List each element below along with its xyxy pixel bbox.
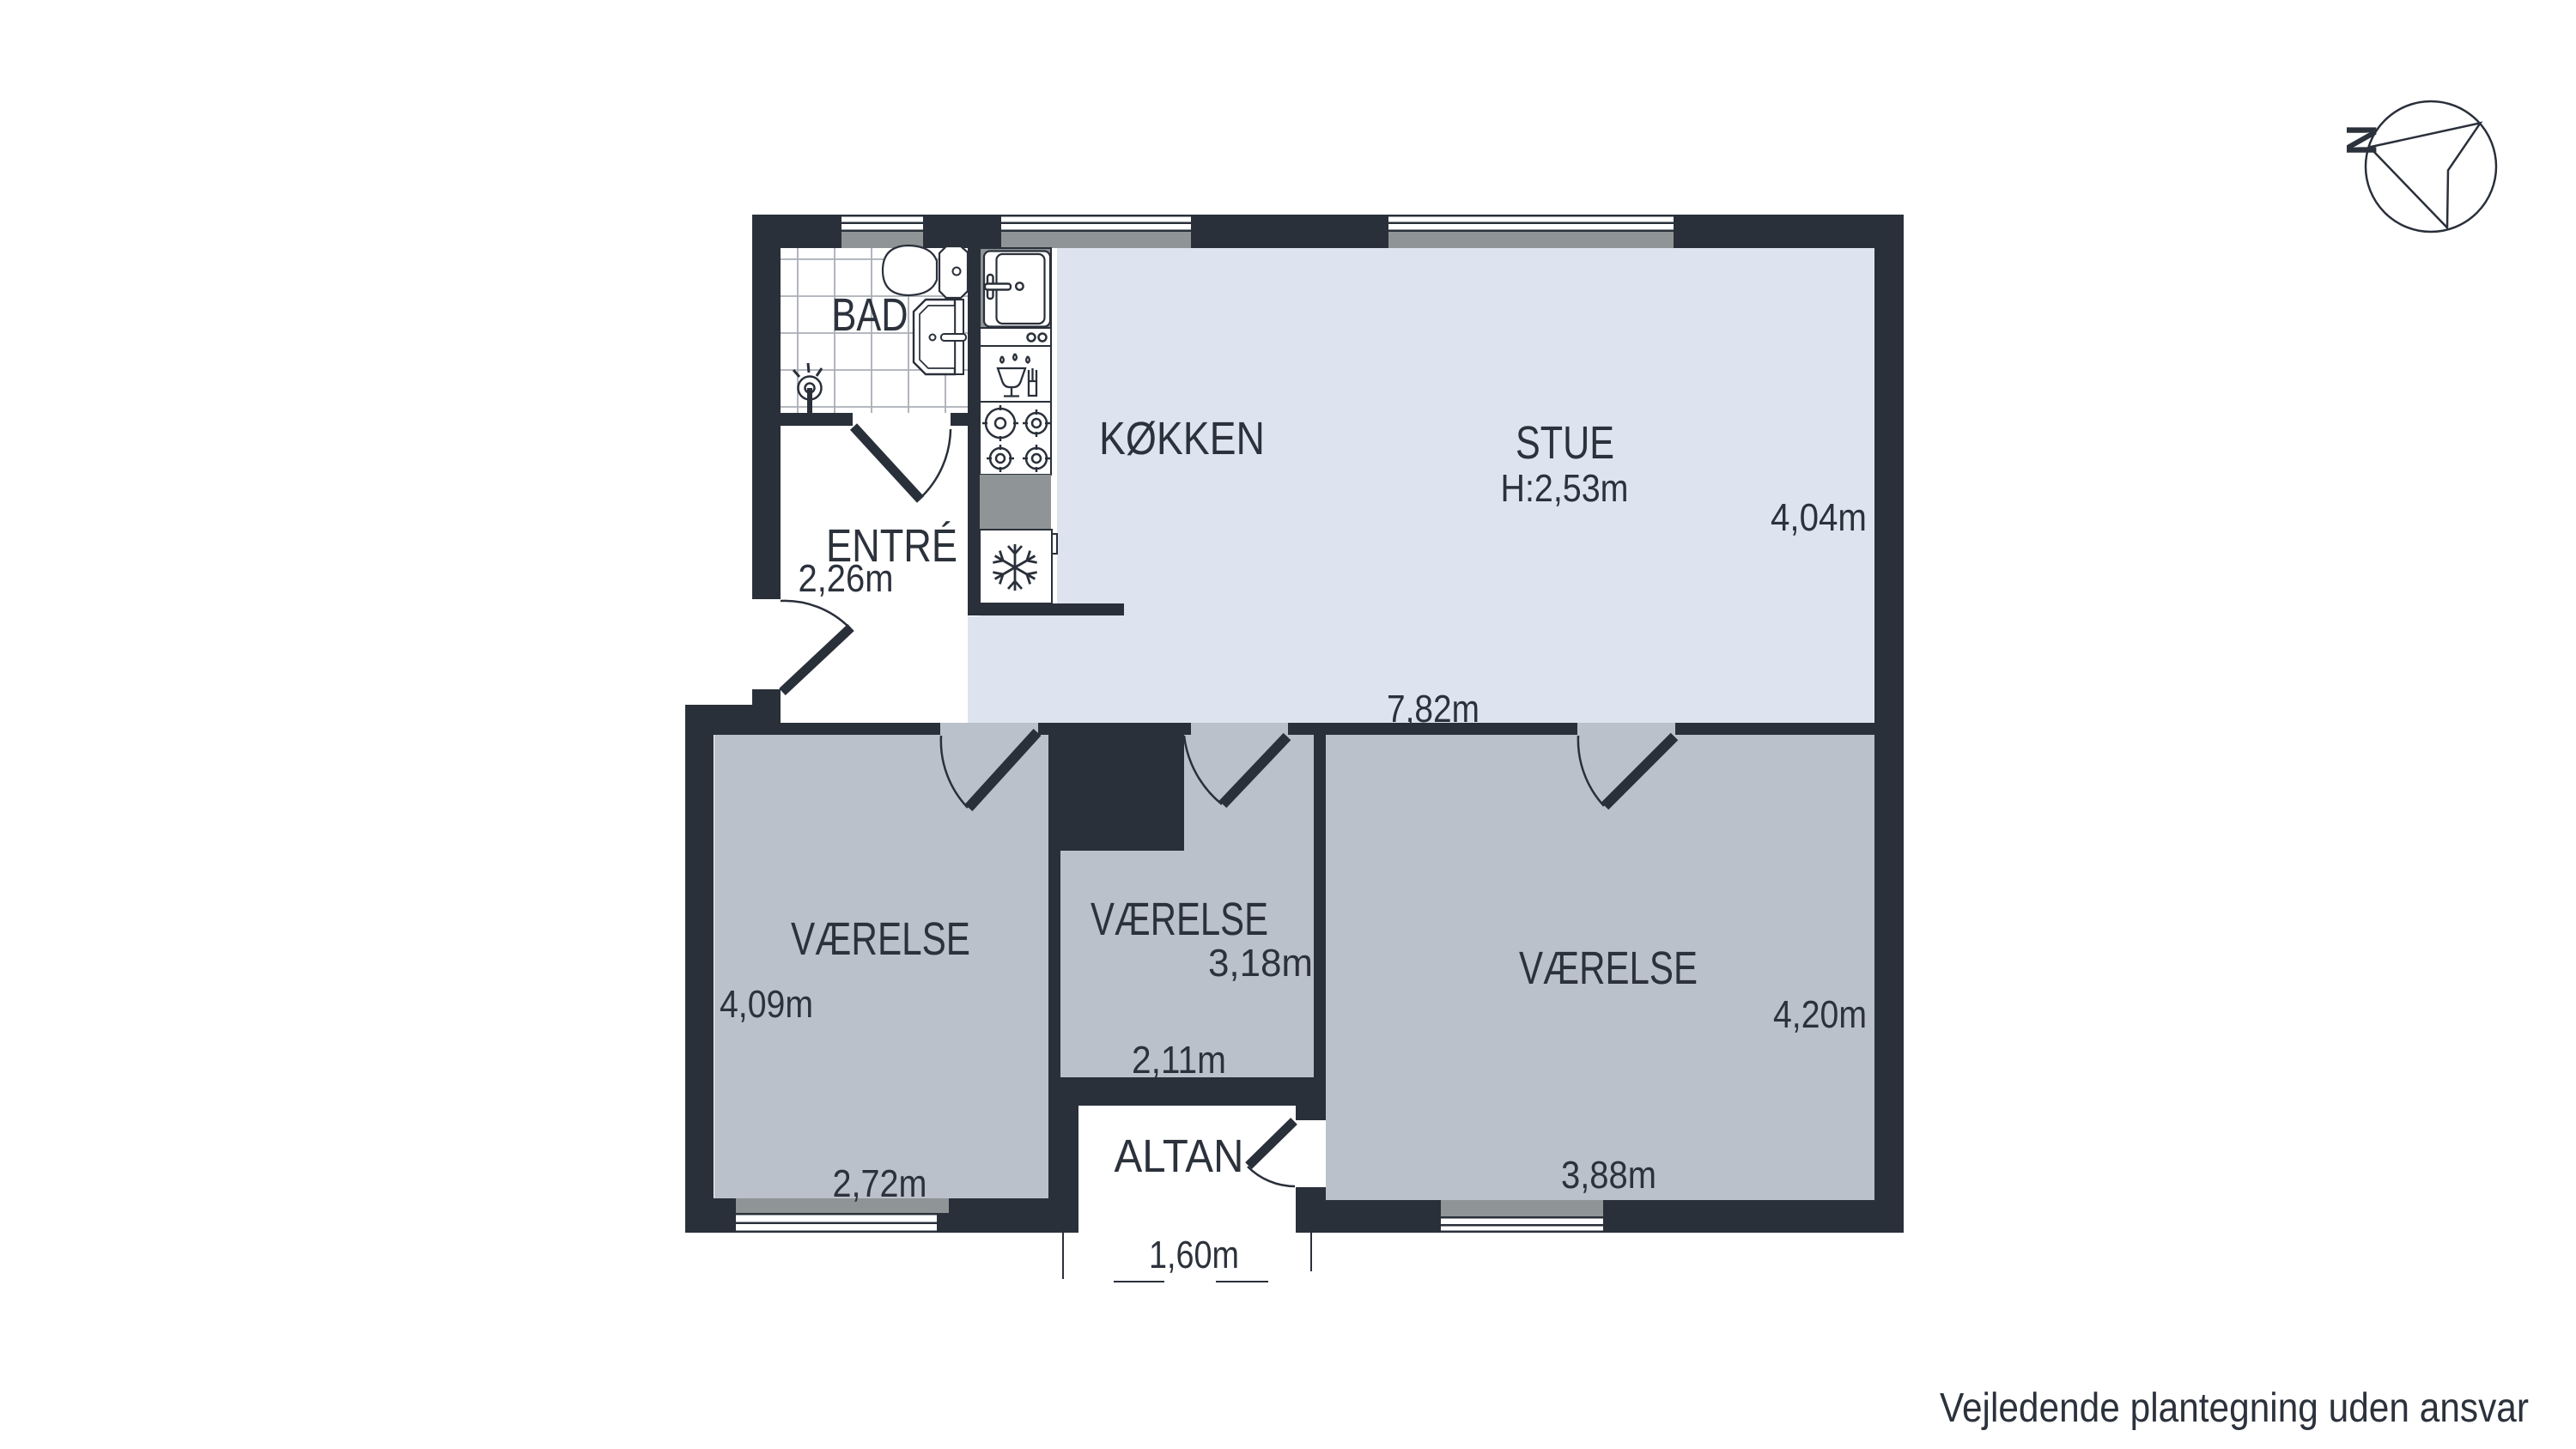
svg-text:H:2,53m: H:2,53m: [1501, 466, 1629, 510]
svg-text:N: N: [2337, 124, 2385, 155]
svg-text:2,26m: 2,26m: [799, 556, 894, 600]
svg-text:3,18m: 3,18m: [1208, 941, 1313, 985]
svg-text:ALTAN: ALTAN: [1115, 1131, 1244, 1182]
svg-text:7,82m: 7,82m: [1387, 687, 1479, 731]
svg-text:4,09m: 4,09m: [720, 982, 813, 1026]
svg-text:VÆRELSE: VÆRELSE: [1519, 943, 1698, 994]
svg-text:4,04m: 4,04m: [1771, 495, 1867, 539]
svg-text:Vejledende plantegning uden an: Vejledende plantegning uden ansvar: [1940, 1385, 2529, 1431]
svg-text:3,88m: 3,88m: [1561, 1153, 1656, 1197]
svg-text:STUE: STUE: [1516, 417, 1614, 469]
svg-text:1,60m: 1,60m: [1149, 1233, 1239, 1276]
svg-text:VÆRELSE: VÆRELSE: [791, 913, 970, 965]
svg-text:4,20m: 4,20m: [1773, 992, 1867, 1036]
svg-text:VÆRELSE: VÆRELSE: [1091, 894, 1268, 945]
svg-text:BAD: BAD: [832, 289, 908, 341]
svg-text:KØKKEN: KØKKEN: [1099, 413, 1265, 464]
svg-text:2,72m: 2,72m: [833, 1161, 927, 1205]
svg-text:2,11m: 2,11m: [1132, 1038, 1226, 1082]
